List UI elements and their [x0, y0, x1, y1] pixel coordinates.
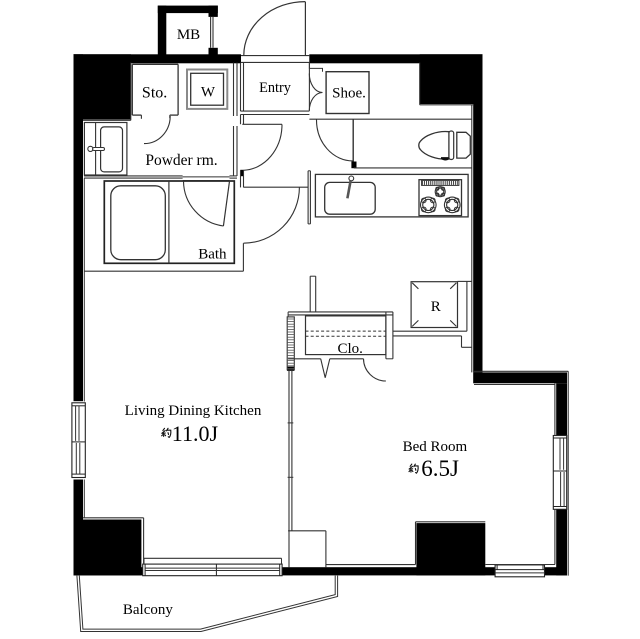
svg-text:Balcony: Balcony: [123, 602, 173, 618]
svg-text:MB: MB: [177, 27, 200, 43]
svg-text:Entry: Entry: [259, 80, 292, 96]
svg-text:R: R: [431, 299, 441, 315]
svg-text:Shoe.: Shoe.: [332, 86, 366, 102]
svg-text:Powder rm.: Powder rm.: [145, 152, 217, 169]
svg-text:11.0J: 11.0J: [172, 421, 219, 446]
svg-text:6.5J: 6.5J: [421, 456, 459, 481]
svg-text:Bath: Bath: [198, 246, 227, 262]
svg-text:W: W: [201, 85, 216, 101]
svg-text:Living Dining Kitchen: Living Dining Kitchen: [125, 403, 262, 419]
svg-text:Sto.: Sto.: [142, 84, 167, 101]
svg-text:Bed Room: Bed Room: [403, 439, 468, 455]
svg-text:Clo.: Clo.: [337, 341, 362, 357]
